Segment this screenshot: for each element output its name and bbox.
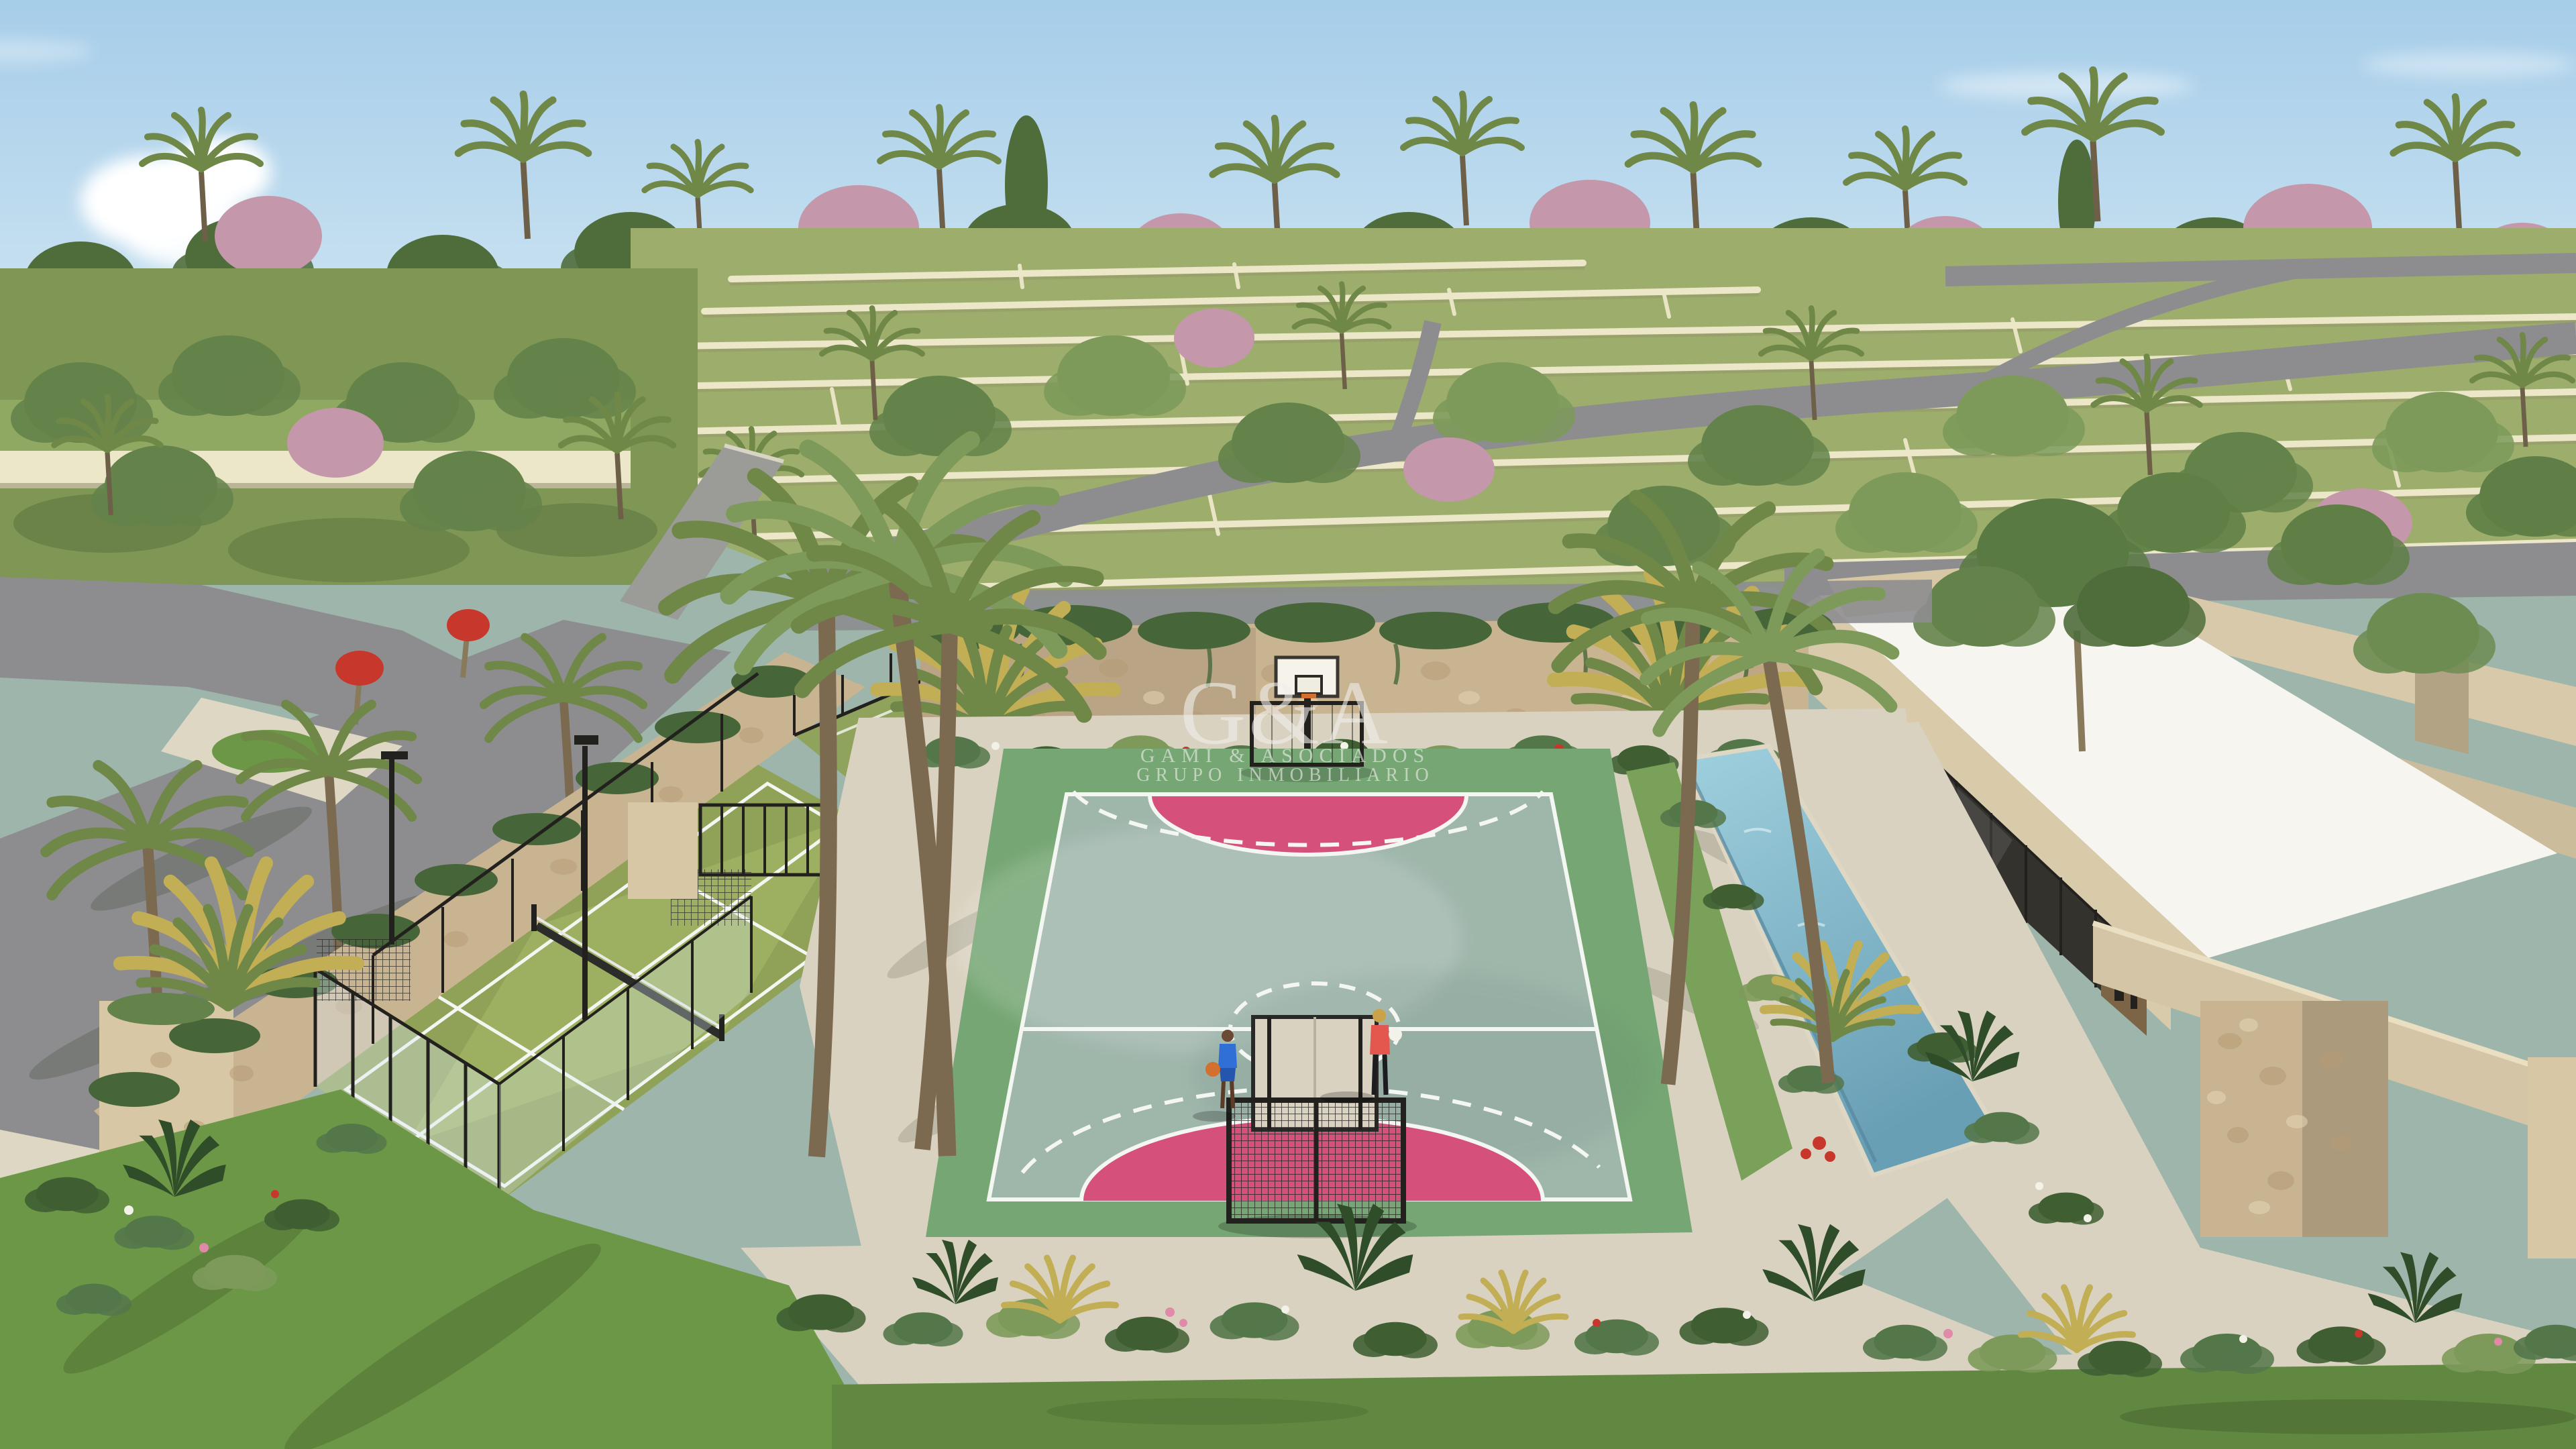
render-canvas: G&A GAMI & ASOCIADOS GRUPO INMOBILIARIO [0,0,2576,1449]
watermark-company: GAMI & ASOCIADOS [1140,745,1430,767]
ball-white [1389,1028,1402,1041]
aerial-render-scene: G&A GAMI & ASOCIADOS GRUPO INMOBILIARIO [0,0,2576,1449]
stone-column-far [2528,1057,2576,1258]
stone-column [2200,1001,2388,1237]
watermark: G&A GAMI & ASOCIADOS GRUPO INMOBILIARIO [1136,663,1434,786]
watermark-tagline: GRUPO INMOBILIARIO [1136,765,1434,786]
basketball [1205,1062,1220,1077]
padel-mesh-panel [317,939,411,1001]
